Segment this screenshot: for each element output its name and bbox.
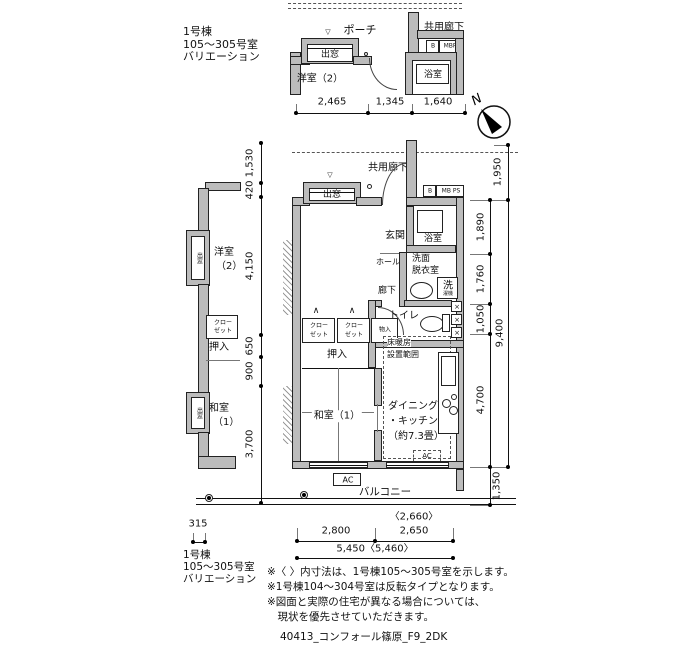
folding-door-mark-icon: ∧ xyxy=(349,306,356,316)
laundry-sub-label: 濯機 xyxy=(443,292,453,298)
window-line xyxy=(309,465,368,466)
bath-unit: 浴室 xyxy=(416,64,449,84)
dim-label: 2,800 xyxy=(322,525,351,537)
toilet-tank-icon xyxy=(442,314,450,332)
western-room-label-top: 洋室（2） xyxy=(297,73,343,85)
note-line: 現状を優先させていただきます。 xyxy=(267,611,434,623)
dim-tick xyxy=(488,252,492,256)
japanese-room-label-main: 和室（1） xyxy=(312,410,362,422)
dim-tick xyxy=(259,333,263,337)
wall-segment xyxy=(406,245,456,253)
variation-label-line2: 105〜305号室 xyxy=(183,561,256,573)
dim-label: 1,760 xyxy=(475,265,487,294)
dim-tick xyxy=(410,111,414,115)
dim-tick xyxy=(506,465,510,469)
dim-tick xyxy=(488,302,492,306)
toilet-bowl-icon xyxy=(420,316,444,332)
dim-label: 1,350 xyxy=(491,472,503,501)
door-stop-icon xyxy=(364,52,368,56)
partition-line xyxy=(206,360,240,361)
dim-tick xyxy=(366,111,370,115)
variation-label-line1: 1号棟 xyxy=(183,26,260,39)
dimension-line xyxy=(296,113,465,114)
dim-label: 900 xyxy=(244,361,256,380)
stove-burner-icon xyxy=(449,406,458,415)
floor-heating-label1: 床暖房 xyxy=(387,338,411,347)
dim-label: 1,890 xyxy=(475,213,487,242)
dim-guide xyxy=(470,505,490,506)
variation-label-bottom: 1号棟 105〜305号室 バリエーション xyxy=(183,549,256,585)
dim-label-side: 315 xyxy=(188,518,207,530)
dim-label: 4,700 xyxy=(475,386,487,415)
wall-segment xyxy=(198,188,209,232)
balcony-rail-line xyxy=(196,498,516,499)
pipe-shaft-box: × xyxy=(451,327,462,338)
triangle-marker-icon: ▽ xyxy=(327,171,332,179)
corridor-label: 廊下 xyxy=(378,286,396,296)
dim-tick xyxy=(451,556,455,560)
washroom-label1: 洗面 xyxy=(412,254,430,264)
wall-segment xyxy=(205,182,241,191)
dim-label: 1,530 xyxy=(244,149,256,178)
sliding-door-line xyxy=(377,404,378,432)
wall-segment xyxy=(456,469,464,491)
balcony-rail-line xyxy=(196,504,516,505)
door-swing-arc xyxy=(369,58,397,90)
north-label: N xyxy=(469,91,485,109)
dim-label: 1,950 xyxy=(492,158,504,187)
dim-label: 2,650 xyxy=(400,525,429,537)
note-line: ※1号棟104〜304号室は反転タイプとなります。 xyxy=(267,581,500,593)
bathtub-icon xyxy=(417,210,443,233)
dim-tick xyxy=(259,195,263,199)
dimension-line xyxy=(297,558,453,559)
closet-label1: クロー xyxy=(214,321,232,328)
dim-label: 650 xyxy=(244,336,256,355)
oshiire-label-main: 押入 xyxy=(327,349,347,361)
pipe-shaft-box: × xyxy=(451,301,462,312)
balcony-label: バルコニー xyxy=(359,486,411,498)
drawing-code: 40413_コンフォール篠原_F9_2DK xyxy=(280,631,447,643)
tatami-line xyxy=(338,368,339,412)
meter-mbps-box-main: MB PS xyxy=(436,185,464,197)
dim-label: 2,465 xyxy=(318,96,347,108)
stove-burner-icon xyxy=(451,394,457,400)
closet-box: クロー ゼット xyxy=(206,315,238,339)
drain-icon-center xyxy=(302,493,306,497)
storage-label: 物入 xyxy=(379,328,391,335)
ac-label: AC xyxy=(422,452,432,460)
variation-label-top: 1号棟 105〜305号室 バリエーション xyxy=(183,26,260,64)
shaft-x-icon: × xyxy=(454,329,460,337)
japanese-room-label-left2: （1） xyxy=(213,417,239,429)
wall-segment xyxy=(404,300,452,307)
ac-unit-box: AC xyxy=(333,473,361,486)
wall-left xyxy=(292,197,301,469)
sink-icon xyxy=(410,282,433,299)
ac-label-balcony: AC xyxy=(343,475,354,484)
triangle-marker-icon: ▽ xyxy=(325,28,330,36)
variation-label-line3: バリエーション xyxy=(183,573,256,585)
window-line xyxy=(386,465,449,466)
dim-label: 420 xyxy=(244,180,256,199)
bay-window-label: 出窓 xyxy=(195,407,202,419)
bay-window-label: 出窓 xyxy=(195,252,202,264)
note-line: ※〈 〉内寸法は、1号棟105〜305号室を示します。 xyxy=(267,566,514,578)
dim-tick xyxy=(488,503,492,507)
meter-b-box-main: B xyxy=(423,185,436,197)
dim-tick xyxy=(259,384,263,388)
dk-label3: （約7.3畳） xyxy=(388,431,444,443)
dim-label: 1,345 xyxy=(376,96,405,108)
closet-box-main: クロー ゼット xyxy=(337,318,370,343)
dim-tick xyxy=(259,355,263,359)
bath-label-main: 浴室 xyxy=(424,234,442,244)
cut-line xyxy=(288,3,462,4)
wall-segment xyxy=(198,456,236,469)
dimension-line xyxy=(490,200,491,505)
dim-tick xyxy=(488,198,492,202)
pipe-shaft-box: × xyxy=(451,314,462,325)
washroom-label2: 脱衣室 xyxy=(412,266,439,276)
shaft-x-icon: × xyxy=(454,303,460,311)
dim-tick xyxy=(488,465,492,469)
dim-label: 9,400 xyxy=(494,319,506,348)
wall-segment xyxy=(374,368,382,406)
entrance-label: 玄関 xyxy=(385,230,405,242)
corridor-boundary-line xyxy=(292,152,518,153)
dim-tick xyxy=(203,540,207,544)
closet-label2: ゼット xyxy=(310,333,328,340)
wall-segment xyxy=(374,430,382,461)
wall-segment xyxy=(356,197,382,206)
closet-label1: クロー xyxy=(345,324,363,331)
meter-b-label-main: B xyxy=(428,189,432,196)
dim-label: 〈2,660〉 xyxy=(390,511,439,523)
washing-machine-box: 洗 濯機 xyxy=(437,277,458,299)
japanese-room-label-left: 和室 xyxy=(209,403,229,415)
dim-tick xyxy=(294,111,298,115)
dim-tick xyxy=(295,556,299,560)
note-line: ※図面と実際の住宅が異なる場合については、 xyxy=(267,596,485,608)
drain-icon-center xyxy=(207,496,211,500)
north-arrow-icon: N xyxy=(464,86,516,144)
hall-label: ホール xyxy=(376,257,400,266)
bay-window-label-top: 出窓 xyxy=(321,50,339,60)
shaft-x-icon: × xyxy=(454,316,460,324)
dim-guide xyxy=(470,254,490,255)
floor-heating-label2: 設置範囲 xyxy=(387,350,419,359)
dim-label: 3,700 xyxy=(244,430,256,459)
bay-window-label-main: 出窓 xyxy=(323,190,341,200)
bath-label-top: 浴室 xyxy=(424,70,442,80)
wall-segment xyxy=(399,252,407,307)
dim-label: 4,150 xyxy=(244,252,256,281)
kitchen-sink-icon xyxy=(441,356,456,386)
dk-label1: ダイニング xyxy=(388,401,438,413)
cut-line xyxy=(288,8,462,9)
dim-label: 1,050 xyxy=(475,305,487,334)
western-room-label-left2: （2） xyxy=(216,261,242,273)
variation-label-line1: 1号棟 xyxy=(183,549,256,561)
wall-segment xyxy=(198,432,209,458)
dim-tick xyxy=(506,143,510,147)
porch-label: ポーチ xyxy=(344,25,377,38)
dim-tick xyxy=(295,539,299,543)
dim-label: 1,640 xyxy=(424,96,453,108)
dim-guide xyxy=(470,334,490,335)
dk-label2: ・キッチン xyxy=(388,416,438,428)
laundry-label: 洗 xyxy=(443,280,453,292)
dim-tick xyxy=(488,332,492,336)
meter-mbps-label-main: MB PS xyxy=(442,189,461,196)
folding-door-mark-icon: ∧ xyxy=(313,306,320,316)
wall-segment xyxy=(198,284,209,394)
closet-box-main: クロー ゼット xyxy=(302,318,335,343)
dim-tick xyxy=(191,540,195,544)
closet-label2: ゼット xyxy=(345,333,363,340)
door-stop-icon xyxy=(367,184,372,189)
dimension-line xyxy=(508,145,509,467)
dim-tick xyxy=(259,181,263,185)
dim-tick xyxy=(506,198,510,202)
dim-label-total: 5,450〈5,460〉 xyxy=(336,543,413,555)
closet-label2: ゼット xyxy=(214,329,232,336)
meter-b-label: B xyxy=(431,44,435,51)
variation-label-line3: バリエーション xyxy=(183,51,260,64)
western-room-label-left: 洋室 xyxy=(214,247,234,259)
oshiire-label-left: 押入 xyxy=(209,342,229,354)
floor-plan-canvas: 1号棟 105〜305号室 バリエーション ポーチ 共用廊下 B MBPS 浴室… xyxy=(0,0,700,650)
closet-label1: クロー xyxy=(310,324,328,331)
dim-tick xyxy=(451,539,455,543)
dim-tick xyxy=(259,141,263,145)
